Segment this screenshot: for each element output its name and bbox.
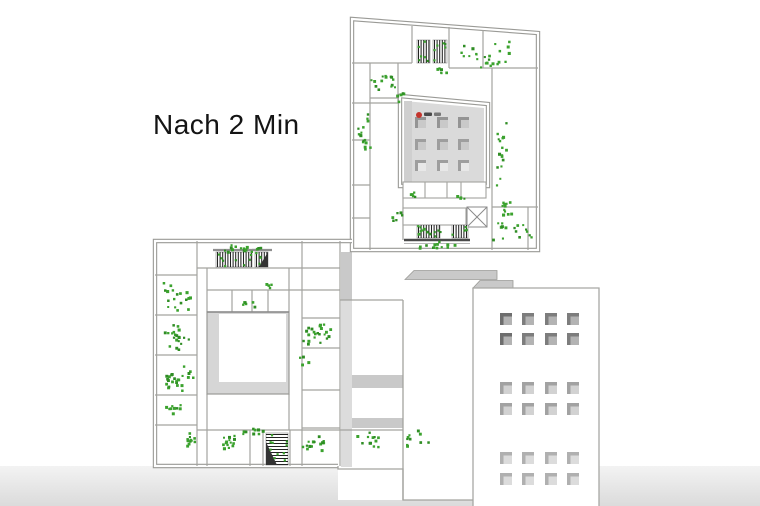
timestamp-label: Nach 2 Min xyxy=(153,109,300,141)
stair-icon xyxy=(266,433,288,465)
skylight-grid xyxy=(415,117,469,171)
tower-building xyxy=(473,281,599,506)
shaft-x-icon xyxy=(467,207,487,227)
stair-icon xyxy=(452,225,468,238)
stair-icon xyxy=(213,250,256,267)
parapet xyxy=(405,271,497,280)
courtyard-building xyxy=(207,312,289,394)
stair-icon xyxy=(417,40,430,63)
evacuation-floor-plan xyxy=(0,0,760,506)
simulation-frame: Nach 2 Min xyxy=(0,0,760,506)
stair-icon xyxy=(433,40,447,63)
